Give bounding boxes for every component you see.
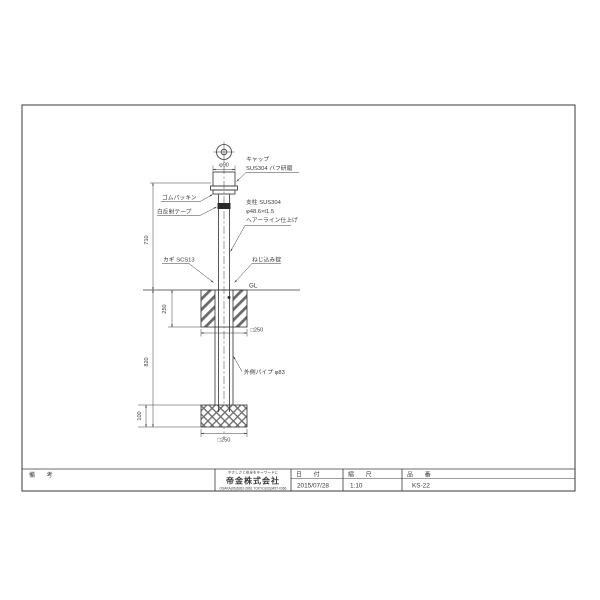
outer-pipe-label: 外側パイプ φ83 <box>244 368 285 376</box>
key-label: カギ SCS13 <box>163 257 195 264</box>
title-block: 備 考 やさしさと安全をキーワードに 帝金株式会社 OSAKA(06)6262-… <box>29 470 436 491</box>
dim-250: 250 <box>162 304 168 313</box>
company-logo: 帝金株式会社 <box>226 476 280 486</box>
dim-100: 100 <box>137 411 143 420</box>
scale-value: 1:10 <box>350 483 363 490</box>
screw-lock-label: ねじ込み錠 <box>252 256 281 264</box>
remarks-header: 備 考 <box>29 471 58 479</box>
footing-block <box>201 405 247 427</box>
post-label-line1: 支柱 SUS304 <box>246 198 282 206</box>
part-number-value: KS-22 <box>412 483 430 490</box>
reflective-tape-label: 白反射テープ <box>157 208 192 216</box>
cap-label-line1: キャップ <box>246 156 269 163</box>
dim-710: 710 <box>144 235 150 244</box>
sheet-border <box>22 105 575 491</box>
reflective-tape-band <box>218 203 231 209</box>
top-view-center-mark-icon <box>214 142 235 163</box>
dim-footing-width: □250 <box>218 438 231 444</box>
dim-foundation-width: □250 <box>251 328 264 334</box>
lock-dot <box>228 296 231 299</box>
technical-drawing-svg: キャップ SUS304 バフ研磨 φ90 ゴムパッキン 白反射テープ 支柱 SU… <box>0 0 600 600</box>
dimension-lines <box>138 166 247 438</box>
cap-label-line2: SUS304 バフ研磨 <box>246 164 293 172</box>
foundation-hatch-left <box>201 290 215 327</box>
cap-diameter: φ90 <box>219 163 229 169</box>
company-slogan: やさしさと安全をキーワードに <box>228 470 279 475</box>
company-phone: OSAKA(06)6262-2861 TOKYO(03)3457-0366 <box>220 487 287 491</box>
date-header: 日 付 <box>296 471 325 479</box>
date-value: 2015/07/28 <box>297 483 329 490</box>
rubber-packing-label: ゴムパッキン <box>162 194 197 202</box>
annotations: キャップ SUS304 バフ研磨 φ90 ゴムパッキン 白反射テープ 支柱 SU… <box>157 156 298 376</box>
scale-header: 縮 尺 <box>348 471 377 479</box>
post-label-line2: φ48.6×t1.5 <box>246 209 274 215</box>
part-number-header: 品 番 <box>407 472 436 479</box>
post-label-line3: ヘアーライン仕上げ <box>246 216 298 224</box>
drawing-sheet: キャップ SUS304 バフ研磨 φ90 ゴムパッキン 白反射テープ 支柱 SU… <box>0 0 600 600</box>
dim-820: 820 <box>144 357 150 366</box>
bollard-elevation <box>143 142 300 439</box>
foundation-hatch-right <box>233 290 247 327</box>
ground-level-label: GL <box>249 283 258 290</box>
